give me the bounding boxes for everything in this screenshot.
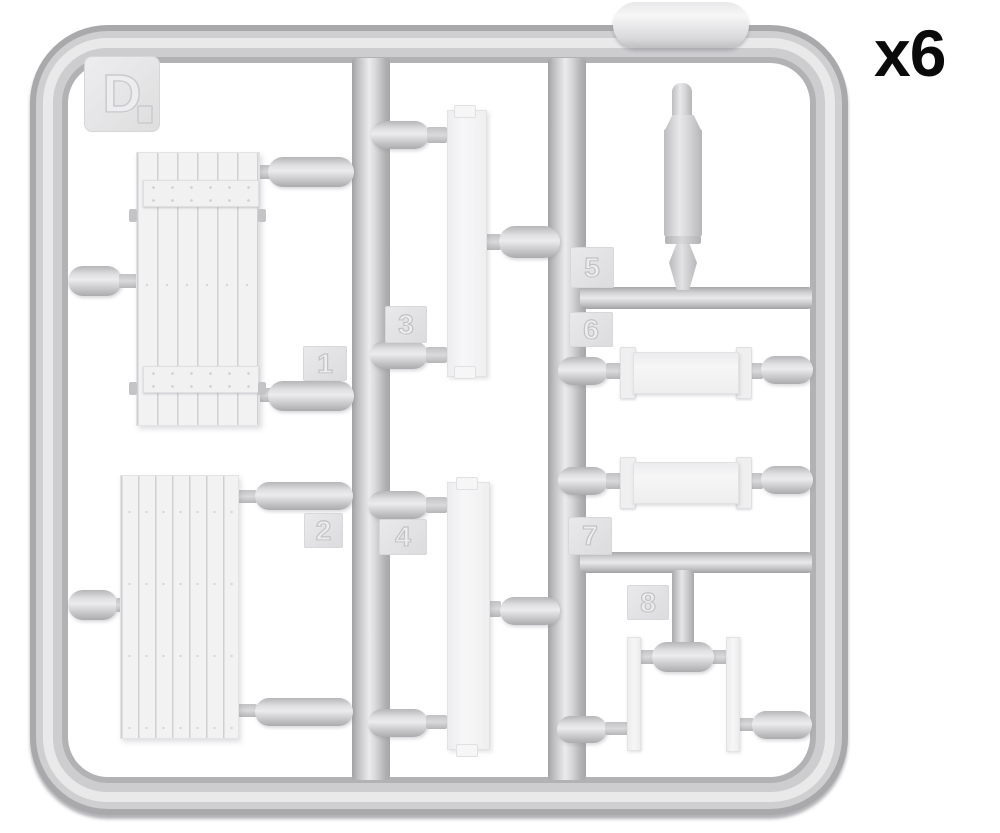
- gate-stub-part4-bottomleft: [426, 715, 447, 729]
- gate-capsule-part7-right: [761, 466, 813, 494]
- part-tag-4-number: 4: [395, 523, 411, 551]
- part-7-crossbar: [633, 462, 739, 504]
- part-1-batten-bottom: [143, 366, 259, 393]
- sprue-letter-tab: D: [84, 56, 160, 132]
- runner-horizontal-upper-right: [580, 287, 812, 309]
- part-1-hinge-nub: [258, 382, 266, 395]
- part-4-end-clasp-bottom: [456, 744, 478, 757]
- part-tag-6-number: 6: [583, 316, 599, 344]
- gate-capsule-part4-topleft: [368, 491, 428, 519]
- part-tag-3-number: 3: [398, 311, 414, 339]
- gate-stub-part1-left: [119, 274, 137, 288]
- gate-capsule-part3-topleft: [371, 121, 429, 149]
- part-tag-7-number: 7: [582, 522, 598, 550]
- gate-capsule-part8-bottomleft: [557, 716, 607, 743]
- gate-capsule-part2-left: [68, 590, 118, 620]
- gate-capsule-part2-bottomright: [255, 698, 353, 726]
- part-8-slat-left: [627, 637, 641, 751]
- gate-capsule-part3-right: [499, 226, 560, 258]
- gate-stub-part3-bottomleft: [426, 347, 447, 363]
- part-5-body: [664, 130, 702, 237]
- gate-capsule-part2-topright: [255, 482, 353, 510]
- sprue-photo: D x6: [0, 0, 1000, 833]
- gate-capsule-part3-bottomleft: [370, 341, 428, 369]
- part-tag-5: 5: [570, 247, 614, 288]
- gate-capsule-part4-right: [500, 597, 560, 625]
- part-3-end-clasp-top: [454, 105, 476, 118]
- sprue-letter-detail-mark: [137, 105, 153, 124]
- part-tag-1-number: 1: [317, 350, 333, 378]
- part-tag-2: 2: [304, 513, 343, 548]
- part-tag-6: 6: [569, 312, 613, 347]
- part-4-board: [447, 482, 490, 750]
- part-4-end-clasp-top: [456, 477, 478, 490]
- part-tag-1: 1: [303, 346, 347, 381]
- part-1-batten-top: [143, 180, 259, 207]
- part-1-hinge-nub: [129, 382, 137, 395]
- gate-capsule-part6-left: [558, 357, 608, 385]
- part-tag-2-number: 2: [316, 517, 332, 545]
- gate-stub-part4-topleft: [426, 497, 447, 513]
- part-6-crossbar: [633, 352, 739, 394]
- runner-vertical-center-left: [352, 58, 390, 780]
- gate-capsule-part6-right: [761, 356, 813, 384]
- part-3-end-clasp-bottom: [454, 366, 476, 379]
- gate-stub-part8-bottomleft: [605, 722, 628, 735]
- part-8-slat-right: [726, 637, 740, 752]
- gate-capsule-part8-t: [652, 642, 714, 672]
- gate-capsule-part8-bottomright: [752, 711, 812, 739]
- gate-capsule-part7-left: [558, 467, 608, 495]
- gate-capsule-part4-bottomleft: [368, 709, 428, 737]
- sprue-hanger-tab: [613, 2, 749, 48]
- gate-capsule-part1-topright: [268, 157, 354, 187]
- quantity-label: x6: [874, 20, 945, 86]
- part-tag-8-number: 8: [640, 589, 656, 617]
- part-1-hinge-nub: [258, 209, 266, 222]
- part-tag-4: 4: [379, 519, 427, 555]
- gate-stub-part2-bottomright: [237, 704, 257, 717]
- gate-stub-part2-topright: [237, 490, 257, 503]
- part-5-base-ring: [665, 236, 701, 244]
- gate-capsule-part1-left: [68, 266, 122, 296]
- part-tag-7: 7: [568, 517, 612, 555]
- sprue-letter: D: [103, 67, 142, 121]
- gate-stub-part3-topleft: [427, 127, 447, 143]
- runner-drop-part8: [672, 570, 694, 648]
- part-tag-3: 3: [385, 306, 427, 343]
- runner-vertical-center-right: [548, 58, 586, 780]
- part-tag-5-number: 5: [584, 254, 600, 282]
- runner-horizontal-lower-right: [580, 552, 812, 573]
- gate-capsule-part1-bottomright: [268, 381, 354, 411]
- part-2-planked-panel: [120, 475, 239, 739]
- part-1-hinge-nub: [129, 209, 137, 222]
- part-3-board: [447, 110, 487, 377]
- part-tag-8: 8: [627, 585, 669, 620]
- part-5-tip-shaft: [672, 95, 692, 117]
